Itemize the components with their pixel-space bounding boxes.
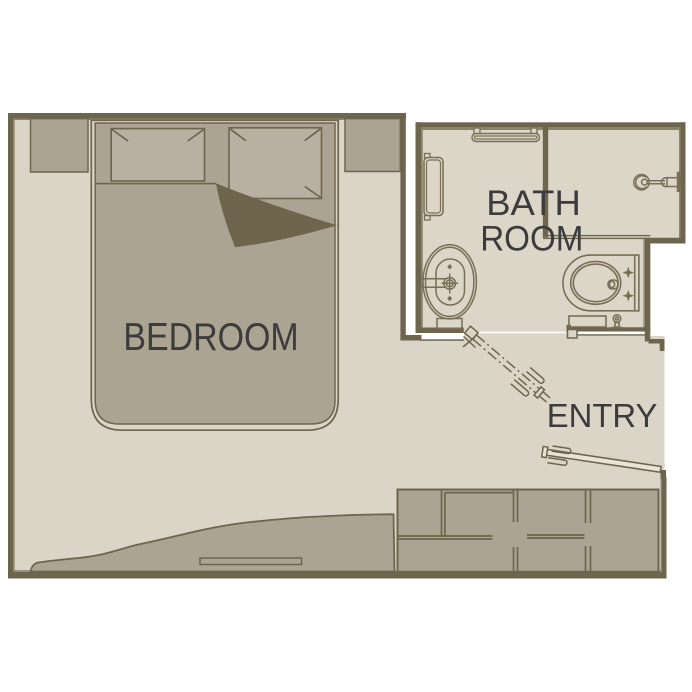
svg-text:BATH: BATH [486, 182, 581, 222]
svg-text:ENTRY: ENTRY [547, 397, 658, 434]
svg-text:BEDROOM: BEDROOM [123, 315, 298, 358]
svg-text:ROOM: ROOM [480, 219, 583, 258]
